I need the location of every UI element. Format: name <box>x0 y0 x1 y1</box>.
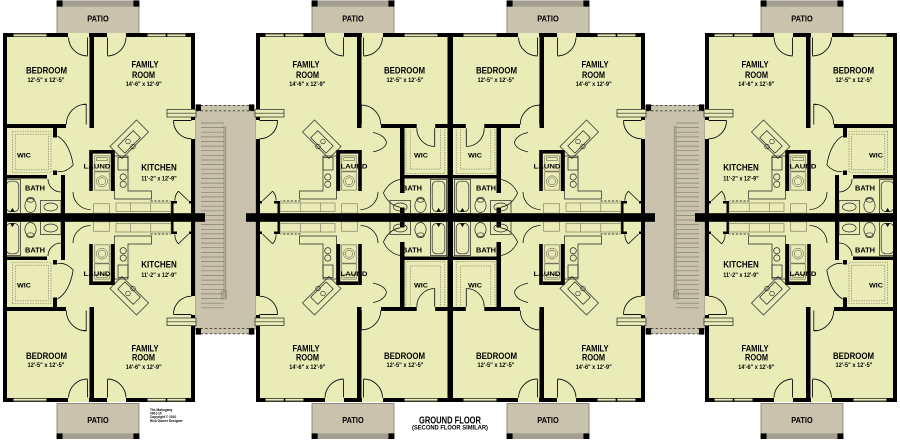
svg-text:12'-5" x 12'-5": 12'-5" x 12'-5" <box>836 77 873 84</box>
svg-text:WIC: WIC <box>17 153 32 160</box>
svg-text:12'-5" x 12'-5": 12'-5" x 12'-5" <box>478 77 515 84</box>
svg-text:11'-2" x 12'-9": 11'-2" x 12'-9" <box>141 175 177 182</box>
svg-text:BEDROOM: BEDROOM <box>384 351 425 361</box>
svg-text:BATH: BATH <box>855 186 875 193</box>
svg-text:FAMILY: FAMILY <box>132 60 159 70</box>
svg-text:11'-2" x 12'-9": 11'-2" x 12'-9" <box>723 272 759 279</box>
svg-text:LAUND: LAUND <box>534 271 561 278</box>
svg-text:LAUND: LAUND <box>534 164 561 171</box>
svg-text:12'-5" x 12'-5": 12'-5" x 12'-5" <box>28 362 65 369</box>
svg-text:BEDROOM: BEDROOM <box>833 65 874 75</box>
svg-text:PATIO: PATIO <box>537 13 559 23</box>
svg-text:FAMILY: FAMILY <box>582 60 609 70</box>
svg-text:LAUND: LAUND <box>341 271 368 278</box>
svg-text:PATIO: PATIO <box>342 13 364 23</box>
svg-text:14'-6" x 12'-9": 14'-6" x 12'-9" <box>289 364 325 371</box>
svg-text:WIC: WIC <box>17 283 32 290</box>
svg-text:WIC: WIC <box>468 153 483 160</box>
svg-text:11'-2" x 12'-9": 11'-2" x 12'-9" <box>723 175 759 182</box>
svg-text:BATH: BATH <box>476 186 496 193</box>
svg-text:14'-6" x 12'-9": 14'-6" x 12'-9" <box>738 81 774 88</box>
svg-text:ROOM: ROOM <box>132 70 155 80</box>
svg-text:BATH: BATH <box>855 248 875 255</box>
svg-text:FAMILY: FAMILY <box>293 60 320 70</box>
svg-text:BEDROOM: BEDROOM <box>476 65 517 75</box>
svg-text:ROOM: ROOM <box>582 70 605 80</box>
svg-text:12'-5" x 12'-5": 12'-5" x 12'-5" <box>478 362 515 369</box>
svg-text:KITCHEN: KITCHEN <box>723 259 759 269</box>
svg-text:ROOM: ROOM <box>745 353 768 363</box>
svg-text:LAUND: LAUND <box>84 271 111 278</box>
svg-text:BATH: BATH <box>25 186 45 193</box>
svg-text:14'-6" x 12'-9": 14'-6" x 12'-9" <box>126 81 162 88</box>
svg-text:11'-2" x 12'-9": 11'-2" x 12'-9" <box>141 272 177 279</box>
svg-text:BEDROOM: BEDROOM <box>26 351 67 361</box>
svg-text:14'-6" x 12'-9": 14'-6" x 12'-9" <box>738 364 774 371</box>
svg-text:14'-6" x 12'-9": 14'-6" x 12'-9" <box>289 81 325 88</box>
svg-text:Rick Garner Designer: Rick Garner Designer <box>150 419 183 423</box>
svg-text:BATH: BATH <box>476 248 496 255</box>
svg-text:12'-5" x 12'-5": 12'-5" x 12'-5" <box>28 77 65 84</box>
svg-text:12'-5" x 12'-5": 12'-5" x 12'-5" <box>387 362 424 369</box>
svg-text:12'-5" x 12'-5": 12'-5" x 12'-5" <box>387 77 424 84</box>
svg-text:WIC: WIC <box>414 153 429 160</box>
svg-text:FAMILY: FAMILY <box>742 60 769 70</box>
svg-text:ROOM: ROOM <box>296 353 319 363</box>
svg-text:PATIO: PATIO <box>87 13 109 23</box>
svg-text:WIC: WIC <box>869 153 884 160</box>
svg-text:WIC: WIC <box>468 283 483 290</box>
svg-text:14'-6" x 12'-9": 14'-6" x 12'-9" <box>126 364 162 371</box>
svg-text:(SECOND FLOOR SIMILAR): (SECOND FLOOR SIMILAR) <box>412 424 488 431</box>
svg-text:BATH: BATH <box>402 186 422 193</box>
svg-text:ROOM: ROOM <box>582 353 605 363</box>
svg-text:PATIO: PATIO <box>87 415 109 425</box>
svg-text:BEDROOM: BEDROOM <box>476 351 517 361</box>
svg-text:BATH: BATH <box>402 248 422 255</box>
svg-text:PATIO: PATIO <box>791 13 813 23</box>
svg-text:14'-6" x 12'-9": 14'-6" x 12'-9" <box>576 364 612 371</box>
svg-text:LAUND: LAUND <box>790 271 817 278</box>
svg-text:KITCHEN: KITCHEN <box>141 163 177 173</box>
svg-text:BEDROOM: BEDROOM <box>384 65 425 75</box>
svg-text:ROOM: ROOM <box>745 70 768 80</box>
svg-text:LAUND: LAUND <box>84 164 111 171</box>
svg-text:14'-6" x 12'-9": 14'-6" x 12'-9" <box>576 81 612 88</box>
svg-text:KITCHEN: KITCHEN <box>141 259 177 269</box>
svg-text:PATIO: PATIO <box>791 415 813 425</box>
svg-text:LAUND: LAUND <box>341 164 368 171</box>
svg-text:PATIO: PATIO <box>342 415 364 425</box>
svg-text:BEDROOM: BEDROOM <box>26 65 67 75</box>
svg-text:ROOM: ROOM <box>132 353 155 363</box>
svg-text:12'-5" x 12'-5": 12'-5" x 12'-5" <box>836 362 873 369</box>
svg-text:KITCHEN: KITCHEN <box>723 163 759 173</box>
svg-text:WIC: WIC <box>414 283 429 290</box>
svg-text:WIC: WIC <box>869 283 884 290</box>
svg-text:LAUND: LAUND <box>790 164 817 171</box>
svg-text:BEDROOM: BEDROOM <box>833 351 874 361</box>
svg-text:PATIO: PATIO <box>537 415 559 425</box>
svg-text:ROOM: ROOM <box>296 70 319 80</box>
svg-text:BATH: BATH <box>25 248 45 255</box>
